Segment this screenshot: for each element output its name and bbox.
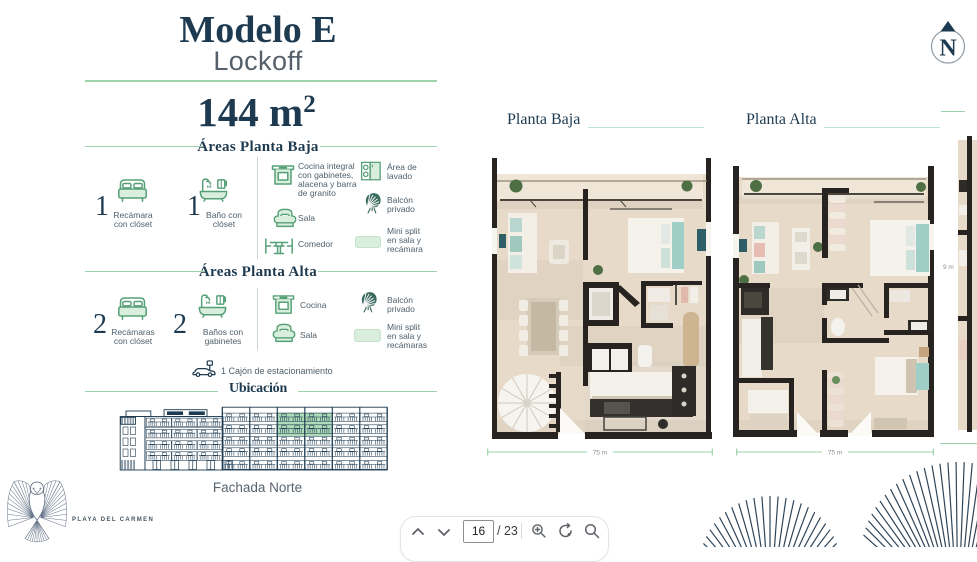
- svg-text:75 m: 75 m: [593, 450, 607, 457]
- svg-text:N: N: [939, 36, 957, 62]
